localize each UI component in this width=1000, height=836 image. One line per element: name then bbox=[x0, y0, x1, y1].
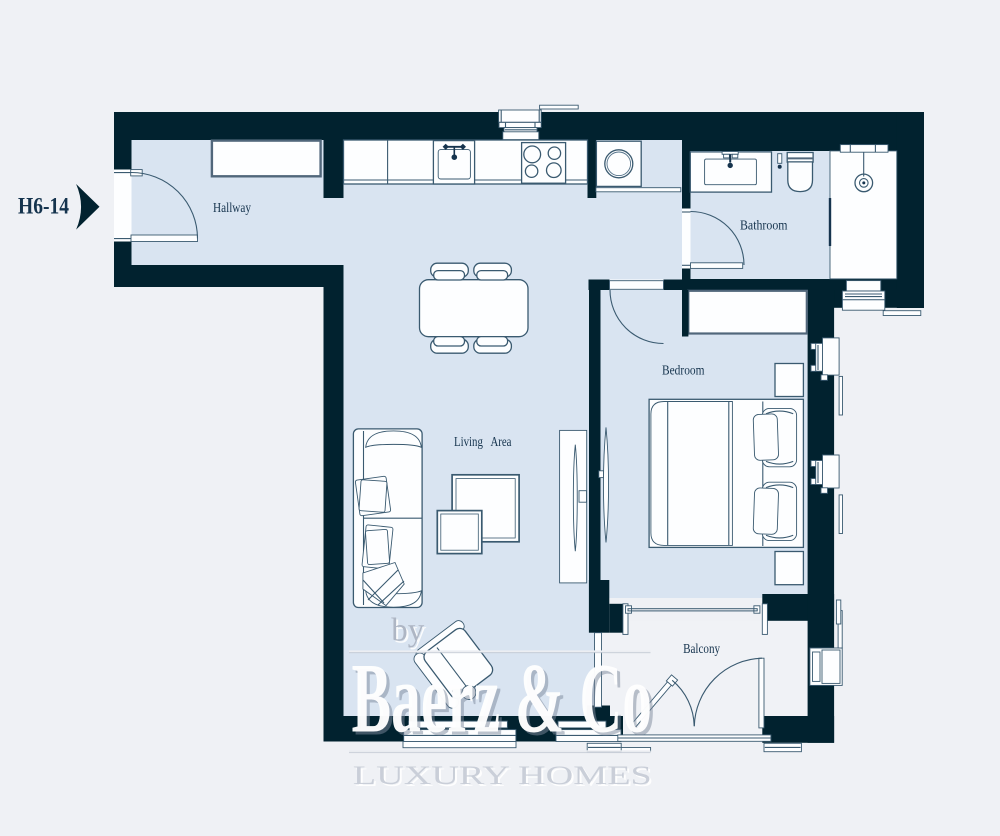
svg-text:LUXURY HOMES: LUXURY HOMES bbox=[353, 760, 652, 790]
svg-text:Baerz & Co: Baerz & Co bbox=[352, 643, 653, 754]
svg-text:Hallway: Hallway bbox=[213, 200, 251, 215]
svg-text:Bedroom: Bedroom bbox=[662, 363, 705, 378]
svg-text:Bathroom: Bathroom bbox=[740, 218, 788, 233]
svg-text:Living Area: Living Area bbox=[454, 434, 512, 449]
svg-text:Balcony: Balcony bbox=[683, 641, 720, 656]
svg-text:H6-14: H6-14 bbox=[18, 194, 69, 219]
